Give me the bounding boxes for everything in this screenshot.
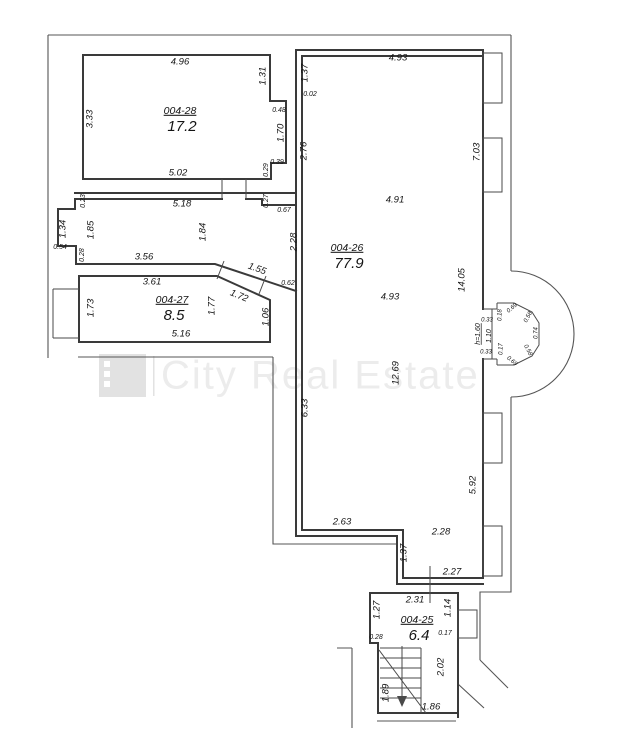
- floor-plan-page: City Real Estate: [0, 0, 632, 743]
- dimension-label: 0.18: [498, 309, 504, 321]
- dimension-label: 0.39: [270, 159, 284, 166]
- watermark-logo-dot: [104, 371, 110, 377]
- dimension-label: 1.14: [443, 599, 454, 618]
- main-room-left-wall-inner: [302, 56, 483, 578]
- window-box: [483, 526, 502, 576]
- dimension-label: 1.73: [86, 298, 97, 317]
- dimension-label: 3.61: [143, 277, 162, 288]
- floor-plan: City Real Estate: [0, 0, 632, 743]
- dimension-label: 1.85: [86, 220, 97, 239]
- room-area-label: 8.5: [164, 307, 186, 324]
- dimension-label: 2.28: [289, 232, 300, 252]
- dimension-label: 0.17: [438, 630, 453, 637]
- dimension-label: 0.27: [263, 193, 270, 208]
- dimension-label: 4.96: [171, 57, 190, 68]
- watermark-logo-dot: [104, 361, 110, 367]
- watermark-separator: [153, 356, 155, 396]
- dimension-label: 0.58: [522, 344, 533, 358]
- dimension-label: 0.28: [79, 248, 86, 262]
- dimension-label: 7.03: [472, 142, 483, 161]
- dimension-label: h=1.60: [475, 323, 482, 345]
- main-room-left-wall-outer: [296, 50, 483, 584]
- dimension-label: 3.56: [135, 252, 154, 263]
- dimension-label: 0.69: [505, 355, 518, 368]
- dimension-label: 2.02: [436, 657, 447, 677]
- dimension-label: 2.76: [299, 141, 310, 161]
- dimension-label: 1.86: [422, 702, 441, 713]
- room-number-label: 004-27: [156, 294, 190, 306]
- dimension-label: 1.84: [198, 223, 209, 242]
- boundary-opening-diagonal: [480, 660, 508, 688]
- dimension-label: 3.33: [85, 109, 96, 128]
- dimension-label: 4.93: [381, 292, 400, 303]
- dimension-label: 0.74: [534, 327, 540, 339]
- window-box: [483, 53, 502, 103]
- dimension-label: 1.06: [261, 307, 272, 326]
- dimension-label: 0.33: [481, 318, 493, 324]
- boundary-right-lower: [480, 397, 511, 660]
- window-box: [483, 138, 502, 192]
- dimension-label: 0.17: [499, 343, 505, 355]
- window-box: [458, 610, 477, 638]
- window-box: [483, 413, 502, 463]
- dimension-label: 1.31: [258, 67, 269, 86]
- dimension-label: 14.05: [457, 267, 468, 291]
- room-area-label: 17.2: [167, 118, 197, 135]
- dimension-label: 0.48: [272, 107, 286, 114]
- dimension-label: 1.77: [207, 296, 218, 315]
- dimension-label: 0.23: [80, 194, 87, 208]
- watermark-text: City Real Estate: [161, 354, 480, 398]
- dimension-label: 1.89: [381, 683, 392, 702]
- room-area-label: 6.4: [409, 627, 430, 644]
- dimension-label: 1.10: [486, 329, 493, 343]
- dimension-label: 0.29: [263, 163, 270, 177]
- watermark: City Real Estate: [99, 354, 480, 398]
- boundary-stair-left: [337, 648, 352, 728]
- dimension-label: 5.18: [173, 199, 192, 210]
- dimension-label: 6.33: [300, 398, 311, 417]
- boundary-arc: [511, 271, 574, 397]
- dimension-label: 0.67: [277, 207, 292, 214]
- dimension-label: 12.69: [391, 360, 402, 384]
- stair-arrow-head-icon: [397, 696, 407, 707]
- room-number-label: 004-26: [331, 242, 364, 254]
- dimension-label: 0.69: [506, 302, 519, 315]
- room-number-label: 004-28: [164, 105, 197, 117]
- dimension-label: 0.33: [480, 350, 492, 356]
- room-area-label: 77.9: [334, 255, 364, 272]
- dimension-label: 1.27: [372, 600, 383, 619]
- dimension-label: 0.62: [281, 280, 295, 287]
- dimension-label: 0.28: [369, 634, 383, 641]
- dimension-label: 1.34: [58, 220, 69, 239]
- dimension-label: 5.02: [169, 168, 188, 179]
- dimension-label: 0.54: [53, 244, 67, 251]
- window-niche-004-27: [53, 289, 79, 338]
- dimension-label: 0.02: [303, 91, 317, 98]
- door-opening-004-28: [222, 179, 246, 199]
- boundary-opening-diagonal: [458, 684, 484, 708]
- dimension-label: 1.70: [276, 123, 287, 142]
- watermark-logo-dot: [104, 381, 110, 387]
- dimension-label: 2.63: [332, 517, 352, 528]
- dimension-label: 5.16: [172, 329, 191, 340]
- dimension-label: 4.93: [389, 53, 408, 64]
- dimension-label: 2.28: [431, 527, 451, 538]
- dimension-label: 1.37: [300, 63, 311, 82]
- dimension-label: 2.31: [405, 595, 425, 606]
- dimension-label: 5.92: [468, 475, 479, 494]
- room-number-label: 004-25: [401, 614, 434, 626]
- dimension-label: 1.37: [399, 543, 410, 562]
- dimension-label: 2.27: [442, 567, 462, 578]
- dimension-label: 4.91: [386, 195, 405, 206]
